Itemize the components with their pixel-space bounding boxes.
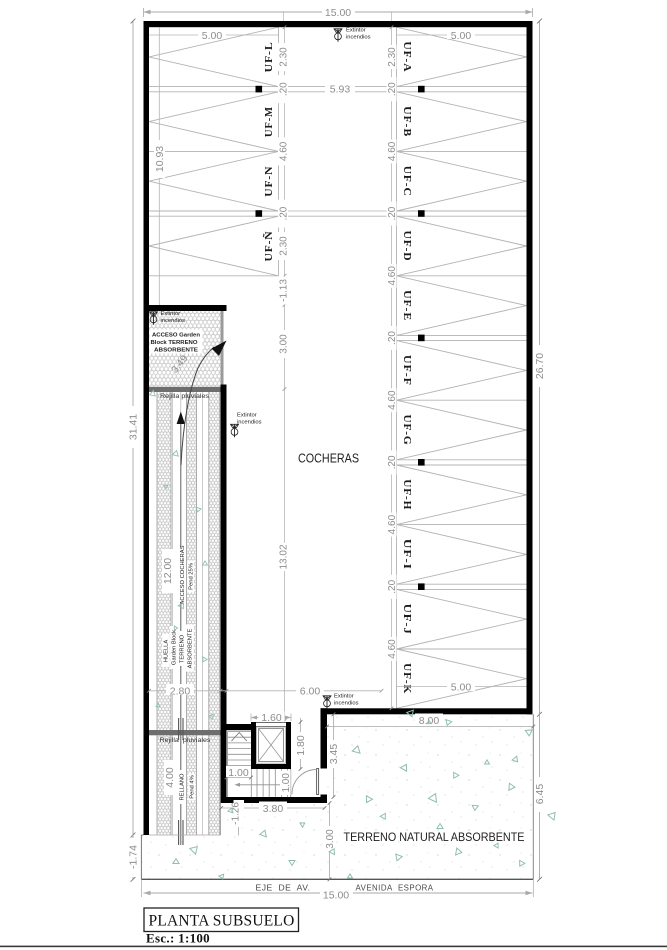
svg-text:Extintor: Extintor xyxy=(346,28,366,34)
svg-text:incendios: incendios xyxy=(346,35,371,41)
svg-text:Block TERRENO: Block TERRENO xyxy=(151,340,198,346)
svg-text:5.00: 5.00 xyxy=(451,30,472,42)
svg-text:10.93: 10.93 xyxy=(154,146,166,172)
svg-text:.20: .20 xyxy=(279,82,290,96)
svg-text:1.00: 1.00 xyxy=(228,767,249,779)
svg-text:-1.13: -1.13 xyxy=(279,279,290,302)
svg-text:ACCESO COCHERAS: ACCESO COCHERAS xyxy=(180,545,186,604)
svg-text:Pend 25%: Pend 25% xyxy=(189,563,195,590)
svg-text:2.80: 2.80 xyxy=(170,686,191,698)
svg-text:AVENIDA ESPORA: AVENIDA ESPORA xyxy=(356,883,434,893)
svg-text:.20: .20 xyxy=(387,455,398,469)
svg-text:UF-Ñ: UF-Ñ xyxy=(263,231,275,262)
svg-text:UF-A: UF-A xyxy=(401,41,413,72)
svg-text:12.00: 12.00 xyxy=(162,558,174,584)
svg-text:ABSORBENTE: ABSORBENTE xyxy=(154,348,198,354)
svg-text:ABSORBENTE: ABSORBENTE xyxy=(188,629,194,669)
svg-text:RELLANO: RELLANO xyxy=(180,773,186,801)
svg-text:3.00: 3.00 xyxy=(325,829,336,849)
svg-text:4.60: 4.60 xyxy=(387,141,398,161)
svg-text:15.00: 15.00 xyxy=(325,7,351,19)
svg-text:2.30: 2.30 xyxy=(279,47,290,67)
svg-text:Extintor: Extintor xyxy=(161,311,181,317)
svg-text:UF-J: UF-J xyxy=(401,604,413,635)
svg-text:UF-M: UF-M xyxy=(263,106,275,137)
svg-text:UF-N: UF-N xyxy=(263,166,275,197)
svg-text:Extintor: Extintor xyxy=(334,694,354,700)
svg-text:2.30: 2.30 xyxy=(387,47,398,67)
svg-text:-1.26: -1.26 xyxy=(231,802,242,825)
svg-text:4.60: 4.60 xyxy=(387,266,398,286)
svg-text:Esc.: 1:100: Esc.: 1:100 xyxy=(146,931,210,946)
svg-text:UF-E: UF-E xyxy=(401,290,413,321)
svg-text:3.00: 3.00 xyxy=(279,334,290,354)
svg-text:COCHERAS: COCHERAS xyxy=(298,452,359,466)
svg-text:UF-C: UF-C xyxy=(401,166,413,197)
svg-text:26.70: 26.70 xyxy=(534,353,546,379)
svg-text:UF-H: UF-H xyxy=(401,479,413,510)
svg-text:EJE DE AV.: EJE DE AV. xyxy=(256,883,311,893)
svg-text:5.00: 5.00 xyxy=(202,30,223,42)
svg-text:1.00: 1.00 xyxy=(281,773,292,793)
svg-text:.20: .20 xyxy=(387,206,398,220)
svg-text:4.60: 4.60 xyxy=(279,141,290,161)
svg-text:4.60: 4.60 xyxy=(387,514,398,534)
svg-text:3.80: 3.80 xyxy=(263,803,284,815)
svg-text:6.00: 6.00 xyxy=(300,686,321,698)
svg-text:TERRENO NATURAL ABSORBENTE: TERRENO NATURAL ABSORBENTE xyxy=(344,830,525,844)
svg-text:ACCESO Garden: ACCESO Garden xyxy=(152,332,200,338)
svg-text:incendios: incendios xyxy=(237,420,262,426)
svg-text:UF-D: UF-D xyxy=(401,231,413,262)
svg-text:6.45: 6.45 xyxy=(534,784,546,805)
svg-text:13.02: 13.02 xyxy=(279,544,290,569)
svg-text:4.60: 4.60 xyxy=(387,639,398,659)
svg-text:TERRENO: TERRENO xyxy=(180,634,186,663)
svg-text:2.30: 2.30 xyxy=(279,236,290,256)
svg-text:15.00: 15.00 xyxy=(323,890,349,902)
svg-text:incendios: incendios xyxy=(161,318,186,324)
svg-text:Extintor: Extintor xyxy=(237,413,257,419)
svg-text:.20: .20 xyxy=(387,331,398,345)
svg-text:Rejilla pluviales: Rejilla pluviales xyxy=(160,393,209,400)
svg-text:Pend 4%: Pend 4% xyxy=(190,775,196,799)
svg-text:3.45: 3.45 xyxy=(328,744,340,765)
svg-text:.20: .20 xyxy=(279,206,290,220)
svg-text:5.93: 5.93 xyxy=(330,84,351,96)
svg-text:UF-K: UF-K xyxy=(401,663,413,694)
svg-text:1.80: 1.80 xyxy=(295,735,307,756)
svg-text:4.00: 4.00 xyxy=(164,767,176,788)
svg-text:1.60: 1.60 xyxy=(261,712,282,724)
svg-text:-1.74: -1.74 xyxy=(128,845,140,869)
svg-text:UF-B: UF-B xyxy=(401,106,413,137)
svg-text:UF-G: UF-G xyxy=(401,415,413,446)
svg-text:Rejilla pluviales: Rejilla pluviales xyxy=(160,737,211,744)
svg-text:.20: .20 xyxy=(387,579,398,593)
svg-text:UF-L: UF-L xyxy=(263,41,275,72)
svg-text:5.00: 5.00 xyxy=(451,681,472,693)
svg-text:PLANTA SUBSUELO: PLANTA SUBSUELO xyxy=(149,913,295,930)
svg-text:4.60: 4.60 xyxy=(387,390,398,410)
svg-text:UF-I: UF-I xyxy=(401,539,413,570)
svg-text:UF-F: UF-F xyxy=(401,355,413,386)
svg-text:incendios: incendios xyxy=(334,701,359,707)
svg-text:Garden Block: Garden Block xyxy=(172,630,178,665)
svg-text:31.41: 31.41 xyxy=(128,414,140,440)
svg-text:HUELLA: HUELLA xyxy=(164,640,170,663)
svg-text:.20: .20 xyxy=(387,82,398,96)
